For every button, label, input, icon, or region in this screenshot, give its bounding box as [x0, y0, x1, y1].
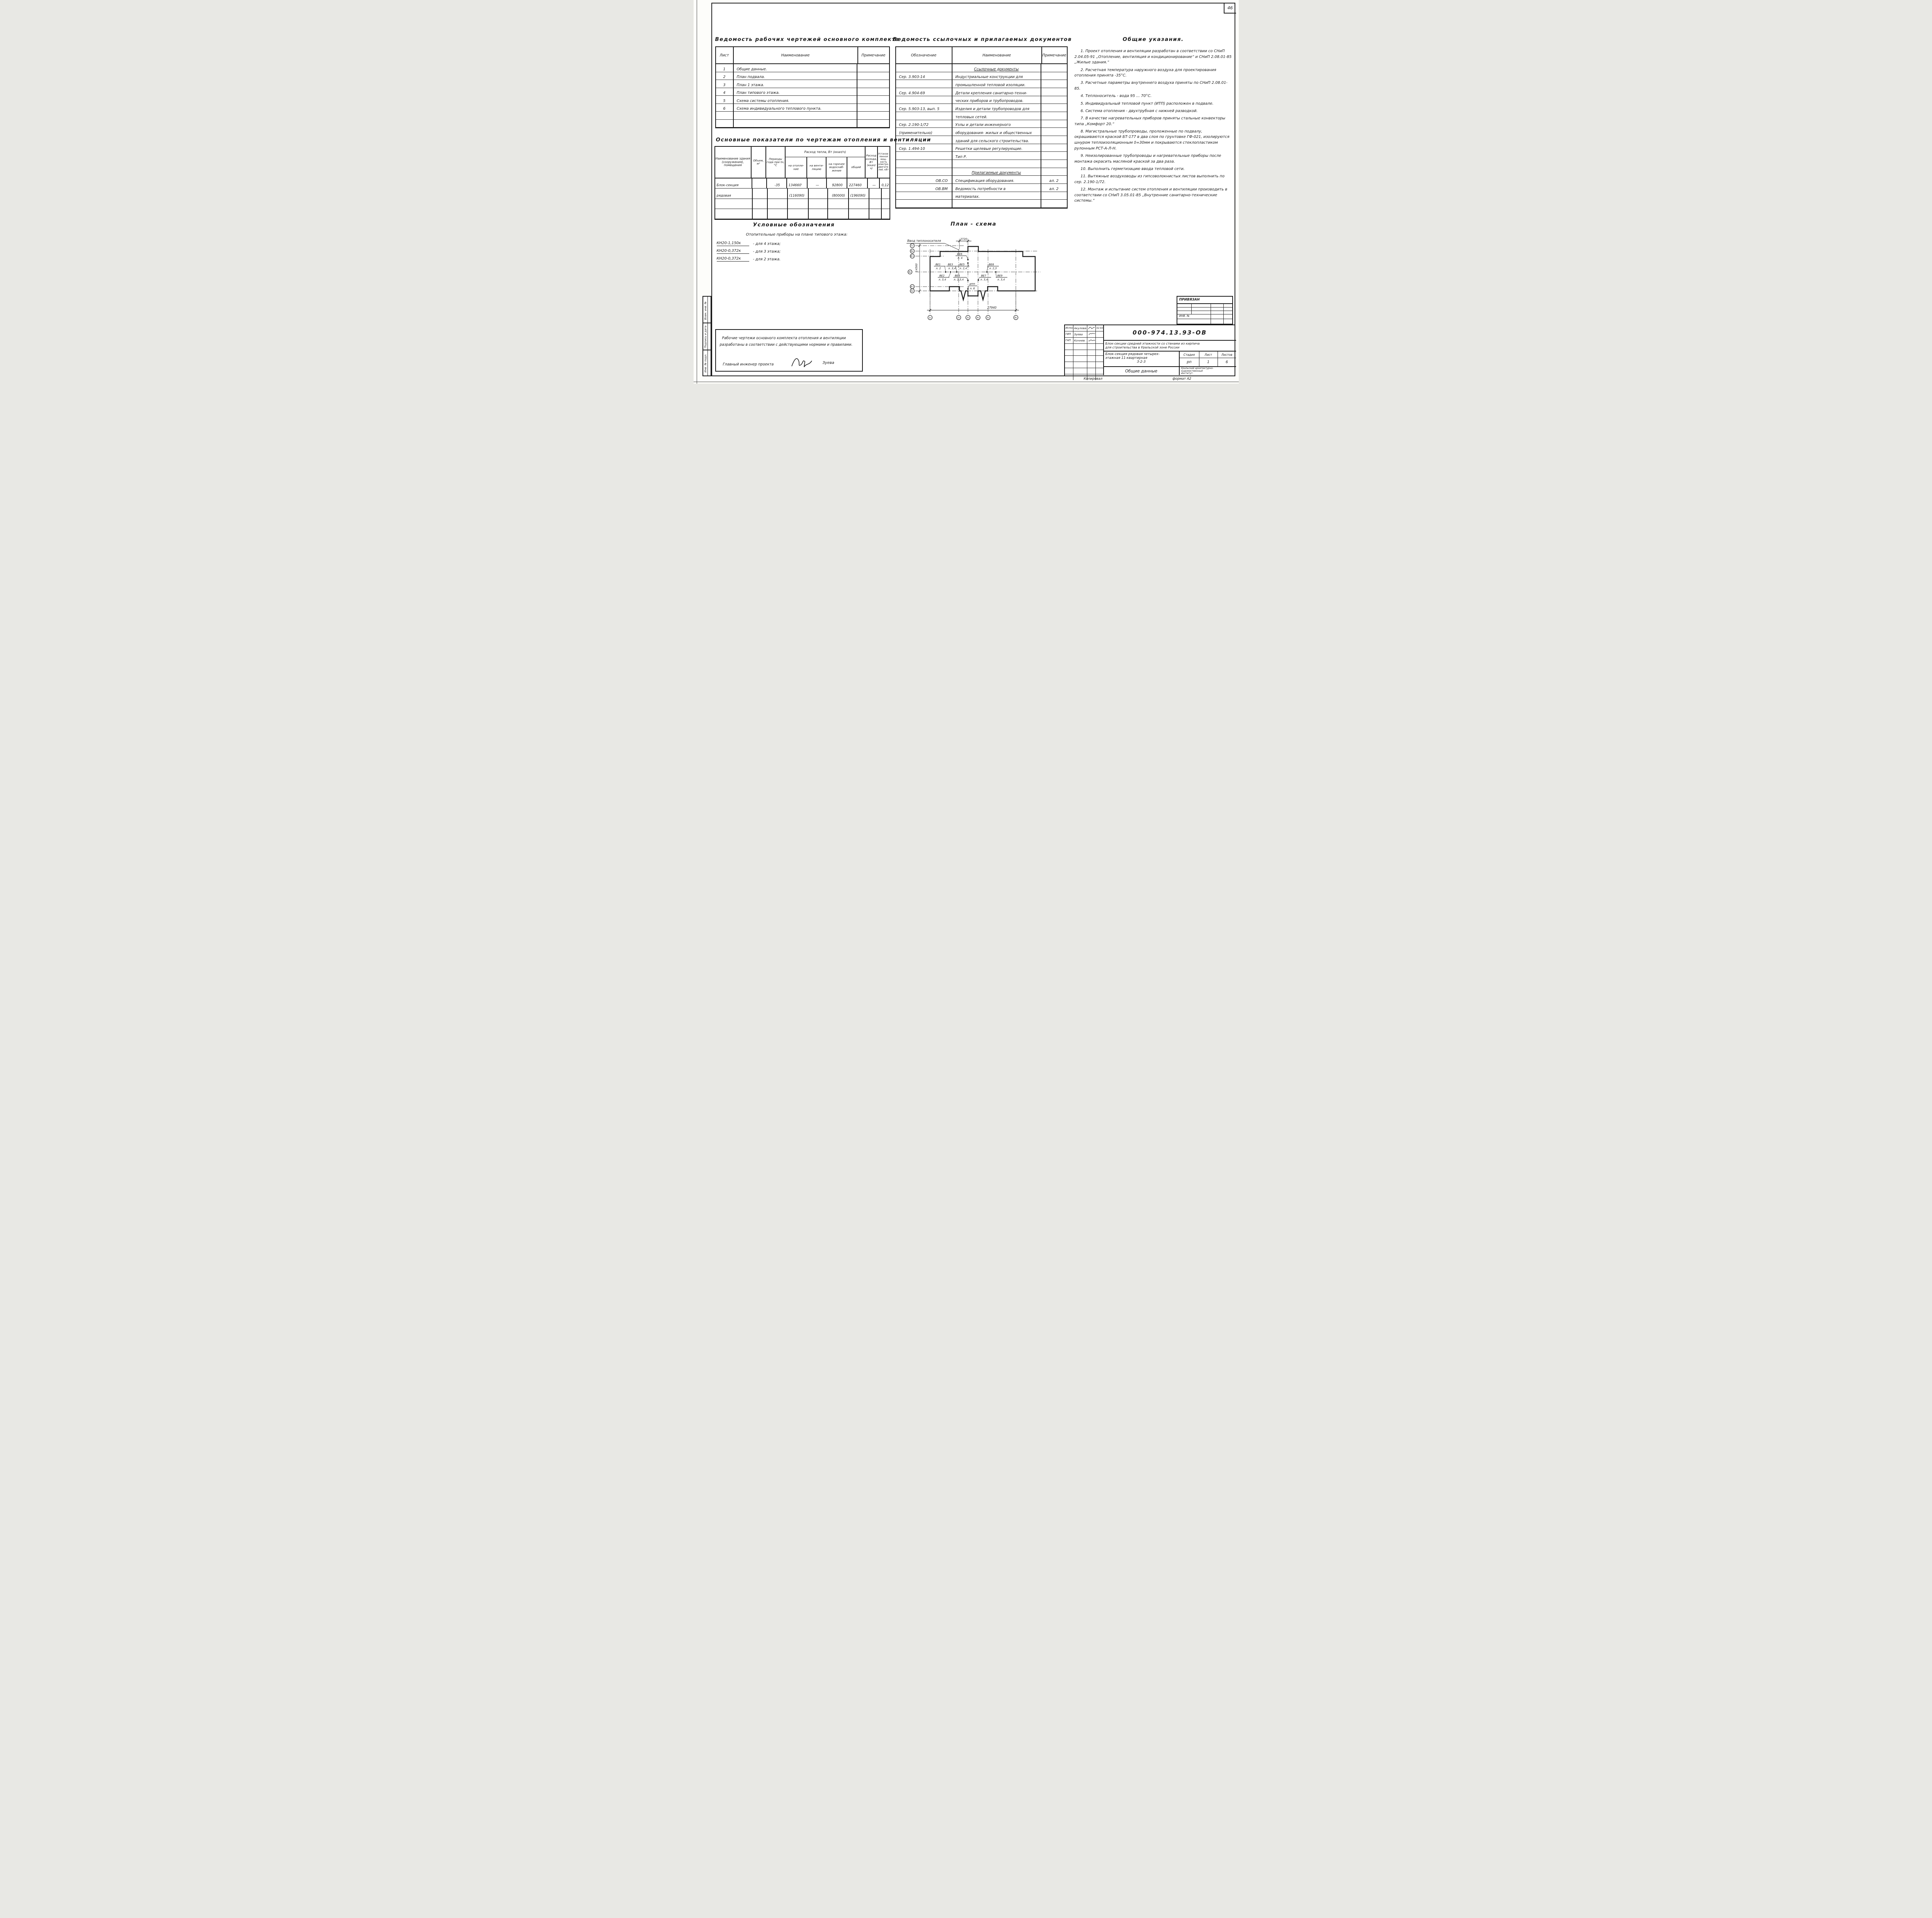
- table-row: промышленной тепловой изоляции.: [896, 80, 1067, 88]
- table-row: Сер. 1.494-10 Решетки щелевые регулирующ…: [896, 144, 1067, 152]
- svg-text:л. 3,4: л. 3,4: [997, 278, 1005, 281]
- legend-item: КН20-0,372к - для 2 этажа.: [717, 257, 856, 262]
- stamp-inv-podl: Инв. № подл.: [704, 352, 707, 374]
- svg-text:2с: 2с: [957, 317, 960, 319]
- indicators-header-power: Установ- ленная мощ- ность электро- двиг…: [877, 147, 889, 178]
- signature-icon: [1088, 338, 1095, 342]
- indicators-title: Основные показатели по чертежам отоплени…: [716, 137, 891, 143]
- signature-icon: [1088, 332, 1095, 336]
- signature-icon: [789, 355, 816, 369]
- unit-label-be2: ВЕ2 л. 3,4: [938, 273, 951, 281]
- object-cell: Блок-секция рядовая четырех- этажная 11-…: [1104, 352, 1180, 367]
- svg-text:Гс: Гс: [911, 245, 913, 247]
- note-item: 8. Магистральные трубопроводы, проложенн…: [1075, 129, 1232, 152]
- stamp-vzam-inv: Взам. инв. №: [704, 300, 707, 321]
- note-item: 7. В качестве нагревательных приборов пр…: [1075, 116, 1232, 127]
- compliance-note-box: Рабочие чертежи основного комплекта отоп…: [715, 329, 863, 372]
- project-desc-line2: для строительства в Уральской зоне Росси…: [1105, 345, 1235, 349]
- table-row: 3 План 1 этажа.: [716, 80, 889, 88]
- register-header: Лист Наименование Примечание: [716, 47, 889, 64]
- svg-text:ИТП: ИТП: [969, 283, 975, 286]
- legend-subtitle: Отопительные приборы на плане типового э…: [746, 233, 885, 237]
- note-item: 1. Проект отопления и вентиляции разрабо…: [1075, 49, 1232, 66]
- indicators-header-building: Наименование здания (сооружения), помеще…: [715, 147, 751, 178]
- dim-left: 14560: [915, 263, 918, 272]
- indicators-header-total: общий: [847, 157, 865, 178]
- project-desc-cell: Блок-секции средней этажности со стенами…: [1104, 341, 1236, 352]
- building-outline: [930, 246, 1035, 300]
- table-row: [716, 112, 889, 120]
- svg-text:А'с: А'с: [910, 286, 913, 288]
- table-row: [716, 120, 889, 128]
- object-line3: 3-2-3: [1105, 360, 1177, 364]
- note-item: 4. Теплоноситель - вода 95 ... 70°С.: [1075, 93, 1232, 99]
- indicators-header-period: Периоды года при tн, °С: [765, 147, 785, 178]
- note-item: 10. Выполнить герметизацию ввода теплово…: [1075, 166, 1232, 172]
- refdocs-header-name: Наименование: [952, 47, 1041, 63]
- legend-title: Условные обозначения: [752, 222, 837, 228]
- legend-code: КН20-0,372к: [717, 249, 749, 254]
- table-row: [896, 160, 1067, 168]
- register-body: 1 Общие данные. 2 План подвала. 3 План 1…: [716, 64, 889, 127]
- note-item: 3. Расчетные параметры внутреннего возду…: [1075, 80, 1232, 92]
- inlet-label: Ввод теплоносителя: [907, 239, 941, 243]
- signature-icon: [1088, 326, 1095, 330]
- notes-title: Общие указания.: [1080, 36, 1227, 42]
- attached-label: ПРИВЯЗАН: [1179, 298, 1200, 302]
- doc-number: 000-974.13.93-ОВ: [1133, 329, 1207, 336]
- table-row: 5 Схема системы отопления.: [716, 96, 889, 104]
- corner-sheet-number-box: 46: [1224, 3, 1236, 14]
- svg-text:В'с: В'с: [910, 255, 913, 258]
- notes-list: 1. Проект отопления и вентиляции разрабо…: [1075, 49, 1232, 206]
- stage-value: рп: [1180, 358, 1199, 366]
- legend-code: КН20-0,372к: [717, 257, 749, 262]
- unit-label-be4: ВЕ4 л. 2,3,4: [953, 274, 968, 281]
- object-line2: этажная 11-квартирная: [1105, 356, 1177, 360]
- left-stamp: Взам. инв. № Подпись и дата Инв. № подл.: [702, 296, 711, 376]
- unit-label-be3: ВЕ3 л. 3,4: [946, 263, 958, 271]
- table-row: ОВ.ВМ Ведомость потребности в ал. 2: [896, 184, 1067, 192]
- unit-label-be5: ВЕ5 л. 2,4: [958, 263, 969, 270]
- svg-text:ВЕ1: ВЕ1: [935, 263, 940, 266]
- svg-text:л. 3,4: л. 3,4: [938, 278, 946, 281]
- sheet-left-edge: [697, 0, 697, 384]
- indicators-header-heating: на отопле- ние: [786, 157, 806, 178]
- compliance-note-line1: Рабочие чертежи основного комплекта отоп…: [722, 336, 858, 340]
- chief-engineer-label: Главный инженер проекта: [723, 362, 774, 367]
- legend-desc: - для 2 этажа.: [753, 257, 781, 262]
- svg-text:ВЕ2: ВЕ2: [939, 274, 944, 277]
- svg-text:л. 3,4: л. 3,4: [948, 267, 956, 270]
- table-row: ческих приборов и трубопроводов.: [896, 96, 1067, 104]
- table-row: [715, 199, 889, 209]
- legend-list: КН20-1,150к - для 4 этажа; КН20-0,372к -…: [717, 241, 856, 264]
- dim-top: 2720: [960, 238, 967, 241]
- legend-desc: - для 3 этажа;: [753, 250, 781, 254]
- svg-text:л. 3,4: л. 3,4: [980, 278, 988, 281]
- sheet-value: 1: [1199, 358, 1218, 366]
- svg-text:л. 4: л. 4: [957, 257, 963, 260]
- note-item: 9. Неизолированные трубопроводы и нагрев…: [1075, 153, 1232, 165]
- svg-text:ВЕ4: ВЕ4: [955, 274, 960, 277]
- format-label: формат А2: [1173, 377, 1211, 381]
- organization-cell: Уральский архитектурно- художественный и…: [1180, 367, 1236, 375]
- note-item: 2. Расчетная температура наружного возду…: [1075, 68, 1232, 79]
- plan-schema: Ввод теплоносителя 2720: [898, 229, 1049, 328]
- register-header-sheet: Лист: [716, 47, 733, 63]
- indicators-header-hot-water: на горячее водоснаб- жение: [826, 157, 847, 178]
- note-item: 6. Система отопления - двухтрубная с ниж…: [1075, 109, 1232, 114]
- legend-item: КН20-0,372к - для 3 этажа;: [717, 249, 856, 254]
- title-block: Исполн. Акулова 02.93 ГИП Зуева ГАП Кочн…: [1064, 324, 1235, 376]
- table-row: ОВ.СО Спецификация оборудования. ал. 2: [896, 176, 1067, 184]
- table-row: [896, 200, 1067, 208]
- table-row: [715, 209, 889, 219]
- table-row: рядовая (116090) (80000) (196090): [715, 189, 889, 199]
- table-row: 6 Схема индивидуального теплового пункта…: [716, 104, 889, 112]
- svg-text:ВЕ6: ВЕ6: [957, 253, 963, 256]
- unit-label-be7: ВЕ7 л. 3,4: [978, 274, 991, 281]
- legend-code: КН20-1,150к: [717, 241, 749, 246]
- indicators-header-heat-span: Расход тепла, Вт (ккал/ч): [786, 147, 865, 157]
- refdocs-header: Обозначение Наименование Примечание: [896, 47, 1067, 64]
- note-item: 12. Монтаж и испытание систем отопления …: [1075, 187, 1232, 204]
- drawing-sheet: 46 Ведомость рабочих чертежей основного …: [694, 0, 1239, 384]
- plan-title: План - схема: [945, 221, 1003, 227]
- indicators-table: Наименование здания (сооружения), помеще…: [714, 146, 890, 220]
- svg-text:ВЕ7: ВЕ7: [981, 274, 986, 277]
- table-row: 2 План подвала.: [716, 72, 889, 80]
- unit-label-be8: ВЕ8 л. 2,3: [987, 263, 999, 271]
- indicators-body: Блок-секция -35 134660' — 92800 227460 —…: [715, 178, 889, 219]
- unit-label-itp: ИТП л. 6: [968, 283, 977, 290]
- copied-label: Копировал: [1084, 377, 1130, 381]
- register-header-name: Наименование: [733, 47, 857, 63]
- svg-text:6с: 6с: [1014, 317, 1017, 319]
- compliance-note-line2: разработаны в соответствии с действующим…: [720, 343, 861, 347]
- org-line3: институт.: [1181, 372, 1235, 375]
- table-row: Блок-секция -35 134660' — 92800 227460 —…: [715, 178, 889, 189]
- svg-text:ВЕ5: ВЕ5: [959, 263, 964, 266]
- register-table: Лист Наименование Примечание 1 Общие дан…: [715, 46, 890, 128]
- sheets-value: 6: [1218, 358, 1236, 366]
- table-row: (применительно) оборудования- жилых и об…: [896, 128, 1067, 136]
- register-title: Ведомость рабочих чертежей основного ком…: [715, 36, 891, 42]
- table-row: материалах.: [896, 192, 1067, 200]
- refdocs-title: Ведомость ссылочных и прилагаемых докуме…: [893, 36, 1069, 42]
- object-line1: Блок-секция рядовая четырех-: [1105, 352, 1177, 356]
- dim-bottom: 27940: [987, 306, 997, 309]
- sig-row-gap: ГАП Кочнев: [1065, 338, 1103, 344]
- doc-title: Общие данные: [1125, 369, 1157, 374]
- svg-text:Вс: Вс: [911, 250, 913, 253]
- table-row: Сер. 4.904-69 Детали крепления санитарно…: [896, 88, 1067, 96]
- unit-label-be9: ВЕ9 л. 3,4: [996, 273, 1007, 281]
- signatures-table: Исполн. Акулова 02.93 ГИП Зуева ГАП Кочн…: [1065, 325, 1104, 375]
- legend-item: КН20-1,150к - для 4 этажа;: [717, 241, 856, 246]
- svg-text:1с: 1с: [929, 317, 931, 319]
- corner-sheet-number: 46: [1228, 5, 1233, 10]
- svg-text:ВЕ3: ВЕ3: [948, 263, 953, 266]
- table-row: Тип Р.: [896, 152, 1067, 160]
- stage-header: Стадия Лист Листов: [1180, 352, 1236, 358]
- table-row: 1 Общие данные.: [716, 64, 889, 72]
- unit-label-be6: ВЕ6 л. 4: [956, 253, 968, 260]
- note-item: 5. Индивидуальный тепловой пункт (ИТП) р…: [1075, 101, 1232, 107]
- legend-desc: - для 4 этажа;: [753, 242, 781, 246]
- table-row: Сер. 5.903-13, вып. 5 Изделия и детали т…: [896, 104, 1067, 112]
- register-header-note: Примечание: [857, 47, 889, 63]
- svg-text:л. 6: л. 6: [969, 287, 975, 290]
- refdocs-header-note: Примечание: [1041, 47, 1067, 63]
- indicators-header: Наименование здания (сооружения), помеще…: [715, 147, 889, 178]
- svg-text:5с: 5с: [986, 317, 989, 319]
- table-row: Сер. 3.903-14 Индустриальные конструкции…: [896, 72, 1067, 80]
- project-desc-line1: Блок-секции средней этажности со стенами…: [1105, 341, 1235, 345]
- svg-text:Ас: Ас: [910, 290, 913, 292]
- sheet-bottom-edge: [694, 382, 1239, 382]
- stage-values: рп 1 6: [1180, 358, 1236, 367]
- refdocs-table: Обозначение Наименование Примечание Ссыл…: [895, 46, 1068, 209]
- svg-text:ВЕ9: ВЕ9: [997, 274, 1002, 277]
- refdocs-header-code: Обозначение: [896, 47, 952, 63]
- indicators-header-cold: Расход холода, Вт (ккал/ч): [865, 147, 877, 178]
- doc-title-cell: Общие данные: [1104, 367, 1180, 375]
- axis-circles-bottom: [928, 315, 1018, 319]
- table-row: 4 План типового этажа.: [716, 88, 889, 96]
- svg-text:3с: 3с: [966, 317, 969, 319]
- indicators-header-ventilation: на венти- ляцию: [806, 157, 826, 178]
- table-row: Прилагаемые документы: [896, 168, 1067, 176]
- svg-text:л. 2,4: л. 2,4: [959, 267, 967, 270]
- svg-text:4с: 4с: [976, 317, 979, 319]
- unit-label-be1: ВЕ1 л. 2: [934, 263, 946, 271]
- indicators-header-volume: Объем, м³: [751, 147, 765, 178]
- table-row: Ссылочные документы: [896, 64, 1067, 72]
- svg-text:ВЕ8: ВЕ8: [989, 263, 994, 266]
- table-row: Сер. 2.190-1/72 Узлы и детали инженерног…: [896, 120, 1067, 128]
- sig-row-ispoln: Исполн. Акулова 02.93: [1065, 325, 1103, 331]
- refdocs-body: Ссылочные документы Сер. 3.903-14 Индуст…: [896, 64, 1067, 208]
- sig-row-gip: ГИП Зуева: [1065, 331, 1103, 338]
- stamp-podpis-data: Подпись и дата: [704, 325, 707, 348]
- inv-number-label: ИНВ. №: [1179, 314, 1190, 318]
- doc-number-cell: 000-974.13.93-ОВ: [1104, 325, 1236, 341]
- attached-block: ПРИВЯЗАН ИНВ. №: [1177, 296, 1233, 324]
- svg-text:Бс: Бс: [908, 271, 911, 274]
- svg-text:л. 2,3,4: л. 2,3,4: [953, 278, 964, 281]
- svg-text:л. 2,3: л. 2,3: [989, 267, 997, 270]
- chief-engineer-name: Зуева: [823, 361, 835, 365]
- note-item: 11. Вытяжные воздуховоды из гипсоволокни…: [1075, 174, 1232, 185]
- svg-text:л. 2: л. 2: [935, 267, 941, 270]
- table-row: тепловых сетей.: [896, 112, 1067, 120]
